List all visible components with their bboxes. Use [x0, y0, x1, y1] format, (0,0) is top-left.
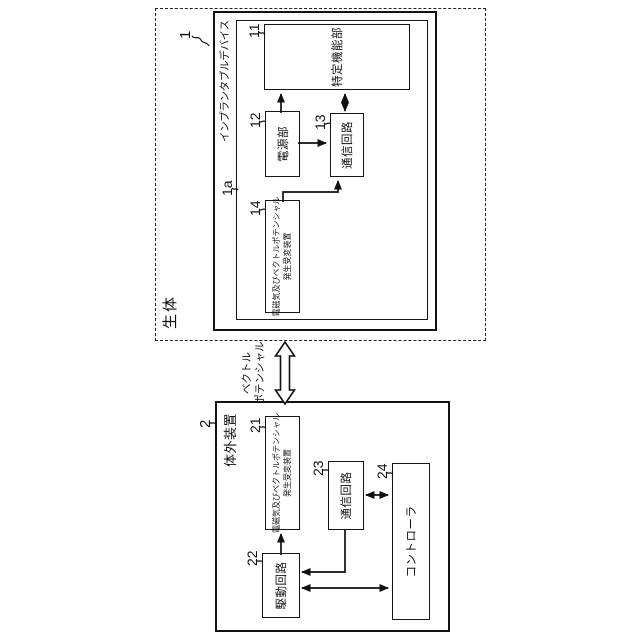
external-device-title: 体外装置: [220, 413, 239, 467]
comm-circuit-block-implant: 通信回路: [330, 113, 364, 177]
specific-function-label: 特定機能部: [329, 27, 345, 87]
specific-function-block: 特定機能部: [264, 24, 410, 90]
drive-circuit-block: 駆動回路: [262, 553, 300, 618]
em-vp-transducer-external-line1: 電磁気及びベクトルポテンシャル: [272, 413, 283, 533]
em-vp-transducer-implant-line2: 発生受変装置: [283, 233, 294, 281]
drive-circuit-label: 駆動回路: [273, 562, 289, 610]
ref-numeral-22: 22: [244, 550, 260, 566]
ref-numeral-1a: 1a: [219, 180, 235, 196]
controller-label: コントローラ: [403, 506, 419, 578]
ref-numeral-14: 14: [247, 200, 263, 216]
comm-circuit-external-label: 通信回路: [338, 472, 354, 520]
living-body-label: 生体: [159, 295, 180, 329]
ref-numeral-12: 12: [247, 112, 263, 128]
vector-potential-double-arrow-icon: [276, 342, 295, 404]
ref-numeral-23: 23: [310, 460, 326, 476]
ref-numeral-13: 13: [312, 114, 328, 130]
comm-circuit-implant-label: 通信回路: [339, 121, 355, 169]
ref-numeral-11: 11: [246, 23, 262, 38]
ref-numeral-24: 24: [374, 463, 390, 479]
controller-block: コントローラ: [392, 463, 430, 620]
patent-figure: 生体 インプランタブルデバイス 1 1a 特定機能部 11 電源部 12 通信回…: [0, 0, 640, 640]
power-supply-block: 電源部: [265, 111, 300, 177]
ref-numeral-1: 1: [177, 31, 194, 39]
em-vp-transducer-external-line2: 発生受変装置: [283, 449, 294, 497]
em-vp-transducer-block-external: 電磁気及びベクトルポテンシャル 発生受変装置: [265, 416, 300, 530]
implantable-device-title: インプランタブルデバイス: [217, 20, 232, 142]
em-vp-transducer-implant-line1: 電磁気及びベクトルポテンシャル: [272, 197, 283, 317]
power-supply-label: 電源部: [275, 126, 291, 162]
rotated-canvas: 生体 インプランタブルデバイス 1 1a 特定機能部 11 電源部 12 通信回…: [0, 0, 640, 640]
comm-circuit-block-external: 通信回路: [328, 461, 364, 530]
ref-numeral-2: 2: [197, 420, 214, 428]
em-vp-transducer-block-implant: 電磁気及びベクトルポテンシャル 発生受変装置: [265, 200, 300, 313]
ref-numeral-21: 21: [247, 417, 263, 433]
